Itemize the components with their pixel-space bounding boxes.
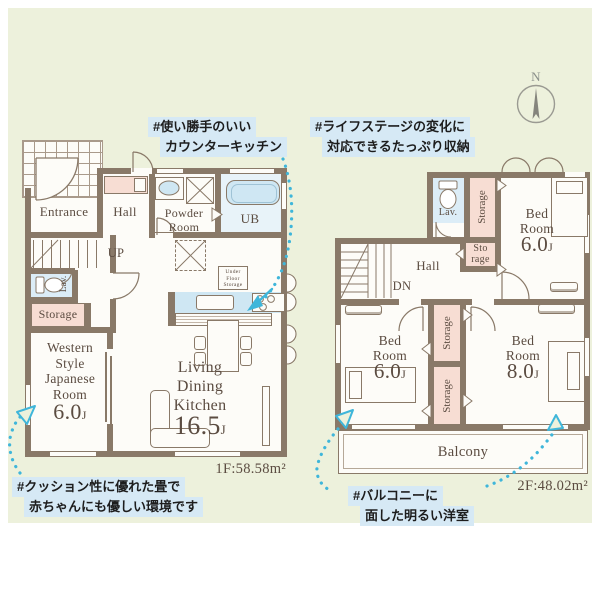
air-conditioner bbox=[550, 282, 578, 292]
storage-mid2-label: Storage bbox=[441, 379, 453, 413]
storage-small-line1: Sto bbox=[464, 244, 497, 255]
washing-machine bbox=[186, 177, 214, 204]
annotation-tatami-line1: #クッション性に優れた畳で bbox=[12, 477, 185, 497]
jr-line1: Western bbox=[27, 340, 113, 356]
annotation-storage-line2: 対応できるたっぷり収納 bbox=[322, 137, 475, 157]
ldk-size-num: 16.5 bbox=[174, 411, 221, 440]
bl-line1: Bed bbox=[360, 333, 420, 348]
floor2-area-label: 2F:48.02m² bbox=[478, 478, 588, 495]
annotation-balcony: #バルコニーに 面した明るい洋室 bbox=[348, 486, 474, 526]
br-size: 8.0J bbox=[493, 364, 553, 382]
storage-top-label: Storage bbox=[476, 190, 488, 224]
tv-board bbox=[262, 386, 270, 446]
door-opening bbox=[131, 168, 152, 174]
annotation-balcony-line2: 面した明るい洋室 bbox=[360, 506, 474, 526]
wall-segment bbox=[25, 268, 75, 274]
entrance-porch-tiles bbox=[22, 140, 103, 198]
wall-segment bbox=[428, 361, 466, 367]
floor-plan-page: Under Floor Storage bbox=[0, 0, 600, 600]
air-conditioner bbox=[538, 304, 575, 314]
bt-size-unit: J bbox=[548, 240, 553, 254]
wall-segment bbox=[107, 424, 113, 457]
wall-segment bbox=[25, 297, 78, 303]
powder-room-label: Powder Room bbox=[153, 207, 215, 235]
bl-size-unit: J bbox=[401, 367, 406, 381]
annotation-kitchen: #使い勝手のいい カウンターキッチン bbox=[148, 117, 287, 157]
ldk-line2: Dining bbox=[150, 377, 250, 396]
annotation-tatami-line2: 赤ちゃんにも優しい環境です bbox=[24, 497, 203, 517]
stairs-up-label: UP bbox=[100, 246, 132, 260]
porch-step-line bbox=[28, 196, 98, 197]
bath-label: UB bbox=[228, 212, 272, 227]
window bbox=[175, 451, 240, 457]
bathtub-inner bbox=[231, 184, 277, 203]
entrance-label: Entrance bbox=[29, 205, 99, 220]
hall-label-2f: Hall bbox=[403, 259, 453, 274]
under-floor-storage: Under Floor Storage bbox=[218, 266, 248, 290]
bl-size-num: 6.0 bbox=[374, 359, 401, 383]
wall-segment bbox=[281, 168, 287, 457]
wall-segment bbox=[25, 327, 113, 333]
br-size-num: 8.0 bbox=[507, 359, 534, 383]
window bbox=[281, 183, 287, 209]
annotation-storage-line1: #ライフステージの変化に bbox=[310, 117, 470, 137]
door-opening bbox=[399, 299, 421, 305]
japanese-room-label: Western Style Japanese Room 6.0J bbox=[27, 340, 113, 424]
powder-line1: Powder bbox=[153, 207, 215, 221]
annotation-balcony-line1: #バルコニーに bbox=[348, 486, 443, 506]
lavatory-label-2f: Lav. bbox=[430, 207, 466, 219]
bedroom-right-label: Bed Room 8.0J bbox=[493, 333, 553, 382]
lavatory-label-1f: Lav. bbox=[59, 276, 69, 293]
ldk-line1: Living bbox=[150, 358, 250, 377]
bedroom-top-label: Bed Room 6.0J bbox=[507, 206, 567, 255]
stove bbox=[252, 293, 285, 312]
window bbox=[335, 325, 341, 363]
hall-shoe-box bbox=[134, 178, 146, 192]
wall-segment bbox=[460, 266, 501, 272]
window bbox=[230, 168, 274, 174]
jr-size-num: 6.0 bbox=[53, 399, 81, 424]
jr-line3: Japanese bbox=[27, 371, 113, 387]
ldk-label: Living Dining Kitchen 16.5J bbox=[150, 358, 250, 439]
powder-sink-counter bbox=[155, 177, 184, 200]
jr-size-unit: J bbox=[82, 408, 87, 422]
br-line1: Bed bbox=[493, 333, 553, 348]
wall-segment bbox=[215, 174, 221, 235]
bt-size-num: 6.0 bbox=[521, 232, 548, 256]
floor1-area-label: 1F:58.58m² bbox=[178, 461, 286, 478]
ldk-size-unit: J bbox=[221, 422, 226, 437]
stairs-dn-label: DN bbox=[386, 279, 418, 293]
refrigerator-space bbox=[175, 240, 206, 271]
air-conditioner bbox=[345, 305, 382, 315]
bed-pillow bbox=[567, 352, 580, 390]
window bbox=[157, 168, 183, 174]
jr-line2: Style bbox=[27, 356, 113, 372]
compass-north-label: N bbox=[528, 70, 544, 85]
dining-chair bbox=[240, 336, 252, 350]
kitchen-sink bbox=[196, 295, 234, 310]
staircase-1f bbox=[33, 240, 99, 268]
wall-segment bbox=[97, 168, 103, 235]
ldk-size: 16.5J bbox=[150, 416, 250, 439]
wall-segment bbox=[464, 172, 470, 237]
wall-segment bbox=[110, 299, 116, 333]
window bbox=[50, 451, 96, 457]
annotation-storage: #ライフステージの変化に 対応できるたっぷり収納 bbox=[310, 117, 475, 157]
annotation-kitchen-line2: カウンターキッチン bbox=[160, 137, 287, 157]
jr-size: 6.0J bbox=[27, 404, 113, 424]
hall-label-1f: Hall bbox=[100, 205, 150, 220]
storage-small-line2: rage bbox=[464, 255, 497, 266]
wall-segment bbox=[25, 232, 103, 238]
storage-label-1f: Storage bbox=[31, 308, 85, 322]
balcony-label: Balcony bbox=[413, 444, 513, 461]
powder-line2: Room bbox=[153, 221, 215, 235]
wall-segment bbox=[168, 292, 175, 326]
bed-pillow bbox=[556, 181, 583, 194]
storage-mid1-label: Storage bbox=[441, 316, 453, 350]
annotation-tatami: #クッション性に優れた畳で 赤ちゃんにも優しい環境です bbox=[12, 477, 203, 517]
bt-size: 6.0J bbox=[507, 237, 567, 255]
br-size-unit: J bbox=[534, 367, 539, 381]
annotation-kitchen-line1: #使い勝手のいい bbox=[148, 117, 256, 137]
dining-chair bbox=[194, 336, 206, 350]
bt-line1: Bed bbox=[507, 206, 567, 221]
door-opening bbox=[472, 299, 494, 305]
storage-small-label: Sto rage bbox=[464, 244, 497, 265]
bl-size: 6.0J bbox=[360, 364, 420, 382]
bedroom-left-label: Bed Room 6.0J bbox=[360, 333, 420, 382]
